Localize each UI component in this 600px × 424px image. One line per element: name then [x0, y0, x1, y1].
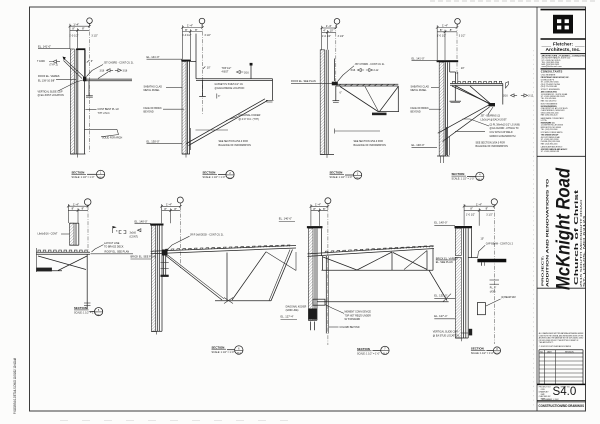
svg-text:8": 8" — [174, 207, 176, 211]
svg-text:EL 139'-10 5/8": EL 139'-10 5/8" — [38, 80, 55, 83]
svg-text:STRUCT. ENGINEERS:: STRUCT. ENGINEERS: — [541, 89, 561, 91]
svg-text:3/16: 3/16 — [351, 69, 356, 72]
svg-text:BALANCE OF INFORMATION: BALANCE OF INFORMATION — [354, 144, 387, 147]
svg-text:SCALE: 1 1/2" = 1'-0": SCALE: 1 1/2" = 1'-0" — [72, 176, 95, 179]
svg-text:SECTION: SECTION — [203, 170, 216, 174]
svg-text:ST. LOUIS, MO 63124: ST. LOUIS, MO 63124 — [582, 214, 586, 287]
svg-text:KM ENGINEERING: KM ENGINEERING — [541, 106, 557, 108]
svg-text:ROOF EL. SEE PLAN: ROOF EL. SEE PLAN — [105, 250, 130, 253]
svg-text:VERTICAL SLIDE CLIP: VERTICAL SLIDE CLIP — [433, 331, 459, 334]
svg-text:8": 8" — [470, 207, 472, 211]
svg-text:1'-4": 1'-4" — [326, 24, 332, 28]
svg-text:Fletcher:: Fletcher: — [553, 41, 574, 46]
svg-text:62 WELDON PK: 62 WELDON PK — [541, 79, 555, 81]
svg-text:PHONE (314) 832-1000: PHONE (314) 832-1000 — [541, 141, 560, 143]
svg-text:L6x6x5/16 - CONT: L6x6x5/16 - CONT — [38, 233, 58, 236]
svg-text:SCALE: 1 1/2" = 1'-0": SCALE: 1 1/2" = 1'-0" — [212, 351, 235, 354]
svg-text:3 1/2": 3 1/2" — [486, 214, 493, 217]
svg-text:GUSSET PL 5/16x5 1/2" CU: GUSSET PL 5/16x5 1/2" CU — [215, 84, 244, 86]
svg-text:Architects, Inc.: Architects, Inc. — [545, 47, 581, 53]
svg-text:ST. LOUIS, MO 63105: ST. LOUIS, MO 63105 — [542, 60, 561, 62]
svg-text:SHEATHG CLAD: SHEATHG CLAD — [411, 85, 430, 88]
svg-text:1'-4": 1'-4" — [73, 202, 79, 206]
svg-text:8": 8" — [323, 207, 325, 211]
svg-text:EL. 140'-0": EL. 140'-0" — [135, 219, 148, 223]
svg-text:TEL: (314) 862-2500: TEL: (314) 862-2500 — [542, 62, 560, 64]
svg-text:CONSTRUCTION/BID DRAWINGS: CONSTRUCTION/BID DRAWINGS — [539, 404, 585, 408]
svg-text:63005 (636) 530-1100: 63005 (636) 530-1100 — [541, 112, 559, 114]
svg-text:1'-0 1/2": 1'-0 1/2" — [182, 34, 191, 37]
svg-text:ADDITION AND RENOVATIONS TO: ADDITION AND RENOVATIONS TO — [546, 178, 550, 287]
svg-text:CHESTERFIELD, MISSOURI: CHESTERFIELD, MISSOURI — [541, 110, 565, 112]
svg-text:Church of Christ: Church of Christ — [574, 190, 580, 285]
svg-text:SOLID FOR ARCH: SOLID FOR ARCH — [102, 137, 122, 140]
svg-text:EL. 127'-4": EL. 127'-4" — [281, 315, 294, 319]
svg-text:3": 3" — [218, 95, 220, 98]
svg-text:S4.0: S4.0 — [553, 385, 577, 398]
svg-text:2-12: 2-12 — [528, 95, 533, 98]
svg-text:THE GREEN GROUP: THE GREEN GROUP — [541, 135, 559, 137]
svg-text:2-12: 2-12 — [374, 69, 379, 72]
svg-text:BEYOND: BEYOND — [411, 111, 421, 114]
svg-text:8": 8" — [72, 207, 74, 211]
svg-text:F:\0335\S4.0-DETAILS.DWG 11/01: F:\0335\S4.0-DETAILS.DWG 11/01/02 10:42A… — [13, 358, 17, 414]
svg-text:BRICK EL. SEE PLAN: BRICK EL. SEE PLAN — [131, 256, 156, 259]
svg-text:(GRID LINE): (GRID LINE) — [286, 310, 299, 312]
svg-text:SEE SECTION 3/S4.0 FOR: SEE SECTION 3/S4.0 FOR — [476, 141, 506, 144]
svg-text:BRIDGETON, MO 63044: BRIDGETON, MO 63044 — [541, 127, 561, 129]
svg-text:6": 6" — [340, 91, 342, 94]
svg-text:COLUMN BEYOND: COLUMN BEYOND — [340, 327, 360, 329]
svg-text:SCALE: 1 1/2" = 1'-0": SCALE: 1 1/2" = 1'-0" — [471, 352, 494, 355]
svg-text:PROJECT:: PROJECT: — [542, 255, 545, 286]
svg-text:PROJECT NO:: PROJECT NO: — [539, 387, 552, 389]
svg-text:JST CHORD - CONT CU 2L: JST CHORD - CONT CU 2L — [355, 63, 386, 66]
svg-text:ROOF EL. SEE PLAN: ROOF EL. SEE PLAN — [291, 80, 316, 83]
svg-text:3 1/2": 3 1/2" — [338, 35, 345, 38]
svg-text:CONSULTANTS: CONSULTANTS — [541, 70, 563, 74]
svg-text:METAL PANEL: METAL PANEL — [411, 89, 428, 92]
svg-text:8": 8" — [82, 207, 84, 211]
svg-text:BEYOND: BEYOND — [144, 111, 154, 114]
svg-text:1'-0 1/2": 1'-0 1/2" — [437, 34, 446, 37]
svg-text:3/16: 3/16 — [100, 70, 105, 73]
svg-text:EL. SEE PLAN: EL. SEE PLAN — [436, 261, 453, 264]
svg-text:1'-0 1/2": 1'-0 1/2" — [466, 214, 475, 217]
svg-text:ST. LOUIS, MO 63116: ST. LOUIS, MO 63116 — [541, 139, 559, 141]
svg-text:4 BOT: 4 BOT — [222, 71, 229, 74]
svg-text:1'-0 1/2": 1'-0 1/2" — [322, 35, 331, 38]
svg-text:4": 4" — [323, 29, 325, 33]
svg-text:8": 8" — [450, 28, 452, 32]
svg-text:10": 10" — [330, 29, 334, 33]
svg-text:2515 SOUTH MCKNIGHT ROAD: 2515 SOUTH MCKNIGHT ROAD — [579, 200, 583, 287]
svg-text:1'-4": 1'-4" — [315, 203, 321, 207]
svg-text:SCALE: 1 1/2" = 1'-0": SCALE: 1 1/2" = 1'-0" — [74, 312, 97, 315]
svg-text:8": 8" — [440, 28, 442, 32]
svg-text:TEL: 314 645-9440: TEL: 314 645-9440 — [541, 98, 556, 100]
svg-text:ROOF EL. VARIES: ROOF EL. VARIES — [38, 75, 60, 78]
svg-text:1'-0 1/2": 1'-0 1/2" — [69, 35, 78, 38]
svg-text:1'-4": 1'-4" — [187, 24, 193, 28]
svg-text:ST. LOUIS, MISSOURI 63143: ST. LOUIS, MISSOURI 63143 — [541, 96, 565, 98]
svg-text:CIVIL ENGINEER:: CIVIL ENGINEER: — [541, 75, 556, 77]
svg-text:8": 8" — [72, 27, 74, 31]
svg-text:@ EA JOIST LOCATION: @ EA JOIST LOCATION — [38, 94, 65, 97]
svg-text:EL. 141'-0": EL. 141'-0" — [412, 56, 425, 60]
svg-text:SECTION: SECTION — [212, 345, 225, 349]
svg-text:EL. 131'-0": EL. 131'-0" — [434, 294, 447, 298]
svg-text:3x3x5: 3x3x5 — [130, 232, 137, 235]
svg-text:TOP NOT REQ'D UNDER: TOP NOT REQ'D UNDER — [345, 315, 372, 317]
svg-text:TEL: (314) 291-2000: TEL: (314) 291-2000 — [541, 129, 558, 131]
svg-text:CHECKED BY:: CHECKED BY: — [539, 396, 552, 398]
svg-text:@ EA STUD LOCATION: @ EA STUD LOCATION — [433, 334, 459, 337]
svg-text:SECTION: SECTION — [452, 172, 465, 176]
svg-text:FACE OF BRICK: FACE OF BRICK — [411, 107, 430, 110]
svg-text:OR DISCLOSED WITHOUT THE WRITT: OR DISCLOSED WITHOUT THE WRITTEN CONSENT… — [539, 340, 579, 342]
svg-text:10": 10" — [207, 66, 211, 69]
svg-text:1'-4": 1'-4" — [166, 202, 172, 206]
svg-text:SEE SECTION 2/S4.0 FOR: SEE SECTION 2/S4.0 FOR — [219, 140, 249, 143]
svg-text:SECTION: SECTION — [72, 170, 85, 174]
svg-text:8": 8" — [313, 207, 315, 211]
svg-text:T 100D: T 100D — [37, 60, 45, 63]
svg-text:EL. 140'-0": EL. 140'-0" — [279, 217, 292, 221]
svg-text:@ 4'-0" O.C. (TYP): @ 4'-0" O.C. (TYP) — [239, 118, 260, 121]
svg-text:8": 8" — [195, 28, 197, 32]
svg-text:ST. LOUIS, MISSOURI: ST. LOUIS, MISSOURI — [541, 151, 560, 153]
svg-text:McKnight Road: McKnight Road — [553, 167, 575, 290]
svg-text:3/16: 3/16 — [123, 70, 128, 73]
svg-text:M.E.P. ENGINEERS:: M.E.P. ENGINEERS: — [541, 103, 558, 105]
svg-text:JST CHORD - CONT CU 2L: JST CHORD - CONT CU 2L — [104, 62, 135, 65]
svg-text:1'-4": 1'-4" — [73, 22, 79, 26]
svg-text:10": 10" — [461, 67, 465, 70]
svg-text:EL. 130'-0": EL. 130'-0" — [147, 139, 160, 143]
svg-text:3 1/2": 3 1/2" — [459, 34, 466, 37]
svg-text:SECTION: SECTION — [74, 306, 87, 310]
svg-text:(CONT): (CONT) — [130, 235, 139, 238]
svg-text:BALANCE OF INFORMATION: BALANCE OF INFORMATION — [476, 145, 509, 148]
svg-text:SECTION: SECTION — [357, 347, 370, 351]
svg-text:LAYOUT LINE: LAYOUT LINE — [104, 242, 120, 245]
svg-text:JR R 3x8 DECK - CONT CU 2L: JR R 3x8 DECK - CONT CU 2L — [190, 233, 224, 236]
svg-text:SCALE: 1 1/2" = 1'-0": SCALE: 1 1/2" = 1'-0" — [452, 178, 475, 181]
svg-text:DIAGONAL KICKER: DIAGONAL KICKER — [239, 114, 261, 117]
svg-text:6": 6" — [91, 60, 93, 63]
svg-text:8": 8" — [185, 28, 187, 32]
svg-text:EL. 130'-0": EL. 130'-0" — [412, 143, 425, 147]
svg-text:10": 10" — [481, 237, 485, 240]
svg-text:SHEATHG CLAD: SHEATHG CLAD — [144, 85, 163, 88]
svg-text:CAP BEAM - CONT CU 2: CAP BEAM - CONT CU 2 — [486, 242, 514, 245]
svg-text:0335: 0335 — [541, 389, 545, 391]
svg-text:1'-4": 1'-4" — [476, 202, 482, 206]
svg-text:METAL PANEL: METAL PANEL — [144, 89, 161, 92]
svg-text:S4.0: S4.0 — [495, 353, 499, 355]
svg-text:REVISION: REVISION — [565, 351, 574, 353]
svg-text:BALANCE OF INFORMATION: BALANCE OF INFORMATION — [219, 144, 252, 147]
svg-text:1'-4": 1'-4" — [442, 24, 448, 28]
svg-text:(TYP 2): (TYP 2) — [50, 64, 58, 67]
svg-text:SCALE: 1 1/2" = 1'-0": SCALE: 1 1/2" = 1'-0" — [357, 352, 380, 355]
svg-text:8": 8" — [82, 27, 84, 31]
svg-text:SCALE: 1 1/2" = 1'-0": SCALE: 1 1/2" = 1'-0" — [330, 176, 353, 179]
svg-text:EL. 141'-0": EL. 141'-0" — [38, 44, 51, 48]
svg-text:TOP 1/2": TOP 1/2" — [222, 67, 232, 70]
svg-text:3/16: 3/16 — [503, 95, 508, 98]
svg-text:EL. 140'-0": EL. 140'-0" — [434, 221, 447, 225]
svg-text:TYP U.N.O.: TYP U.N.O. — [98, 112, 111, 115]
svg-text:VERTICAL SLIDE CLIP: VERTICAL SLIDE CLIP — [38, 90, 64, 93]
svg-text:GRIND FLUSH/SMOOTH: GRIND FLUSH/SMOOTH — [490, 136, 516, 138]
svg-text:8": 8" — [486, 207, 488, 211]
svg-text:SCALE: 1 1/2" = 1'-0": SCALE: 1 1/2" = 1'-0" — [203, 176, 226, 179]
svg-text:3 1/2": 3 1/2" — [91, 35, 98, 38]
svg-text:(314) 725-6362 PHONE: (314) 725-6362 PHONE — [541, 84, 561, 86]
svg-text:ST. LOUIS, MO 63105: ST. LOUIS, MO 63105 — [541, 82, 559, 84]
svg-text:COL WITH CJP WELD: COL WITH CJP WELD — [490, 132, 513, 134]
svg-text:TO BRACE DECK: TO BRACE DECK — [104, 246, 124, 249]
svg-text:EL. 141'-0": EL. 141'-0" — [147, 55, 160, 59]
svg-text:P.L. 4": P.L. 4" — [490, 288, 497, 290]
svg-text:EL. 127'-4": EL. 127'-4" — [434, 314, 447, 318]
svg-text:3 1/2": 3 1/2" — [204, 34, 211, 37]
svg-text:CONT BENT PL 1/2: CONT BENT PL 1/2 — [98, 108, 120, 111]
svg-text:8": 8" — [164, 207, 166, 211]
svg-text:SEE SECTION 3/S4.0 FOR: SEE SECTION 3/S4.0 FOR — [354, 140, 384, 143]
svg-text:MOMENT CONN DEVICE: MOMENT CONN DEVICE — [345, 312, 372, 314]
svg-text:SECTION: SECTION — [330, 170, 343, 174]
svg-text:3/16: 3/16 — [244, 71, 249, 74]
svg-text:FACE OF BRICK: FACE OF BRICK — [144, 107, 163, 110]
svg-text:SECTION: SECTION — [471, 347, 484, 351]
